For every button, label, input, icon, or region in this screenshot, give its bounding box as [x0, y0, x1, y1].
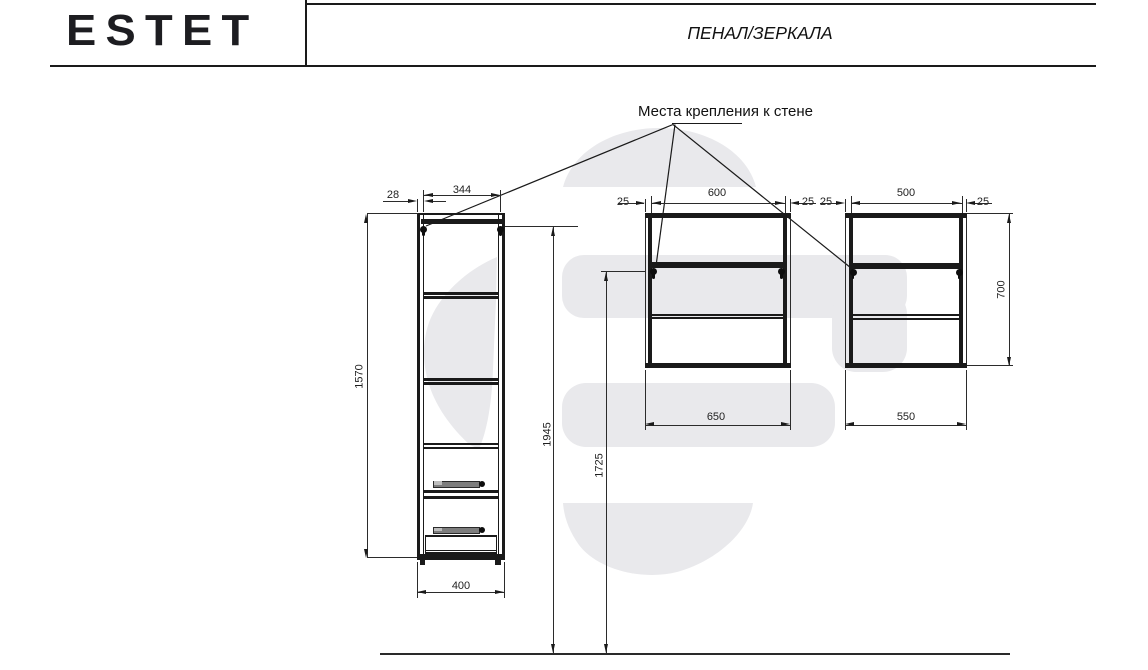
dim-label-600: 600	[695, 187, 739, 199]
tall-cabinet-left-edge	[417, 213, 420, 559]
tall-shelf-line	[423, 443, 500, 445]
tall-shelf-line	[423, 447, 500, 449]
drawer-box-top	[425, 535, 498, 537]
dim-arrow	[491, 193, 500, 197]
dim-arrow	[836, 201, 845, 205]
dim-arrow	[408, 199, 417, 203]
dim-arrow	[417, 590, 426, 594]
dim-arrow	[845, 422, 854, 426]
ext-line	[500, 190, 501, 212]
dim-line-1570	[367, 213, 368, 558]
ext-line	[785, 196, 786, 213]
drawer-handle-knob	[479, 481, 485, 487]
dim-arrow	[604, 644, 608, 653]
dim-label-344: 344	[441, 184, 483, 196]
drawing-sheet: ESTET ПЕНАЛ/ЗЕРКАЛА Места крепления к ст…	[0, 0, 1148, 670]
dim-arrow	[781, 422, 790, 426]
dim-label-28: 28	[380, 189, 406, 201]
dim-label-650: 650	[694, 411, 738, 423]
tall-cabinet-bottom-band	[417, 554, 505, 560]
tall-cabinet-top-edge	[417, 213, 505, 215]
mirror-edge-line	[645, 213, 646, 368]
dim-label-1570: 1570	[354, 357, 367, 397]
mount-point-tall-right-stem	[499, 232, 502, 237]
narrow-cabinet-top-band	[845, 213, 967, 218]
ext-line	[417, 199, 418, 212]
leader-lines	[0, 0, 1148, 670]
ext-line	[505, 226, 578, 227]
dim-arrow	[1007, 357, 1011, 366]
ext-line	[966, 370, 967, 430]
annotation-underline	[672, 123, 742, 124]
mount-point-tall-left-stem	[422, 232, 425, 237]
mirror-edge-line	[966, 213, 967, 368]
ext-line	[790, 370, 791, 430]
dim-arrow	[645, 422, 654, 426]
tall-shelf-line	[423, 382, 500, 384]
ext-line	[645, 370, 646, 430]
dim-arrow	[604, 272, 608, 281]
ext-line	[962, 196, 963, 213]
dim-label-500: 500	[884, 187, 928, 199]
narrow-cabinet-shelf-line	[853, 318, 959, 320]
wall-mount-annotation: Места крепления к стене	[608, 103, 843, 120]
wide-cabinet-right-edge	[783, 213, 787, 368]
wide-cabinet-bottom-band	[645, 363, 791, 369]
header-bottom-rule	[50, 65, 1096, 67]
dim-arrow	[652, 201, 661, 205]
dim-arrow	[851, 201, 860, 205]
tall-shelf-line	[423, 292, 500, 294]
dim-line	[645, 425, 790, 426]
ext-line	[845, 199, 846, 212]
narrow-cabinet-bottom-band	[845, 363, 967, 369]
dim-arrow	[495, 590, 504, 594]
tall-cabinet-foot	[420, 560, 426, 565]
dim-arrow	[775, 201, 784, 205]
tall-cabinet-foot	[495, 560, 501, 565]
wide-cabinet-left-edge	[648, 213, 652, 368]
narrow-cabinet-right-edge	[959, 213, 963, 368]
mount-point-wide-left-stem	[652, 274, 655, 279]
dim-line	[851, 203, 962, 204]
tall-cabinet-inner-right-line	[498, 215, 499, 555]
wide-cabinet-top-band	[645, 213, 791, 218]
dim-line	[845, 425, 967, 426]
mount-point-wide-right-stem	[780, 274, 783, 279]
tall-cabinet-top-band	[421, 219, 502, 225]
tall-shelf-line	[423, 496, 500, 499]
ext-line	[645, 199, 646, 212]
tall-shelf-line	[423, 490, 500, 493]
leader-line-wide-cabinet	[656, 125, 675, 267]
tall-shelf-line	[423, 296, 500, 298]
dim-arrow	[364, 214, 368, 223]
dim-label-700: 700	[996, 270, 1009, 310]
mount-point-narrow-right-stem	[958, 275, 961, 280]
dim-label-400: 400	[440, 580, 482, 592]
ext-line	[367, 557, 417, 558]
narrow-cabinet-left-edge	[849, 213, 853, 368]
tall-cabinet-inner-left-line	[423, 215, 424, 555]
ext-line	[367, 213, 418, 214]
dim-label-1725: 1725	[594, 446, 607, 486]
dim-label-25-left: 25	[814, 196, 838, 208]
dim-arrow	[424, 193, 433, 197]
dim-arrow	[551, 227, 555, 236]
wide-cabinet-shelf-line	[652, 317, 783, 319]
dim-line	[433, 201, 446, 202]
ext-line	[845, 370, 846, 430]
brand-logo: ESTET	[66, 6, 258, 56]
mirror-edge-line	[845, 213, 846, 368]
dim-label-1945: 1945	[542, 415, 555, 455]
leader-line-tall-cabinet	[426, 125, 673, 227]
dim-label-25-left: 25	[611, 196, 635, 208]
dim-arrow	[424, 199, 433, 203]
narrow-cabinet-shelf-line	[853, 314, 959, 316]
dim-label-550: 550	[884, 411, 928, 423]
mirror-edge-line	[790, 213, 791, 368]
document-title: ПЕНАЛ/ЗЕРКАЛА	[655, 23, 865, 44]
dim-arrow	[952, 201, 961, 205]
drawer-box-bottom	[425, 550, 498, 552]
dim-line	[424, 195, 501, 196]
dim-arrow	[1007, 214, 1011, 223]
wide-cabinet-shelf	[652, 262, 783, 268]
mount-point-narrow-left-stem	[852, 275, 855, 280]
dim-line-700	[1009, 213, 1010, 366]
dim-arrow	[551, 644, 555, 653]
dim-label-25-right: 25	[971, 196, 995, 208]
dim-line	[652, 203, 785, 204]
title-block-top-rule	[305, 3, 1096, 5]
title-block-divider	[305, 0, 307, 66]
tall-shelf-line	[423, 378, 500, 380]
dim-arrow	[957, 422, 966, 426]
dim-line	[383, 201, 408, 202]
floor-line	[380, 653, 1010, 655]
drawer-handle-knob	[479, 527, 485, 533]
narrow-cabinet-shelf	[853, 263, 959, 269]
dim-line	[820, 203, 836, 204]
dim-arrow	[636, 201, 645, 205]
wide-cabinet-shelf-line	[652, 314, 783, 316]
dim-line	[417, 592, 505, 593]
drawer-handle-cap	[434, 481, 442, 485]
drawer-handle-cap	[434, 528, 442, 532]
tall-cabinet-right-edge	[502, 213, 505, 559]
